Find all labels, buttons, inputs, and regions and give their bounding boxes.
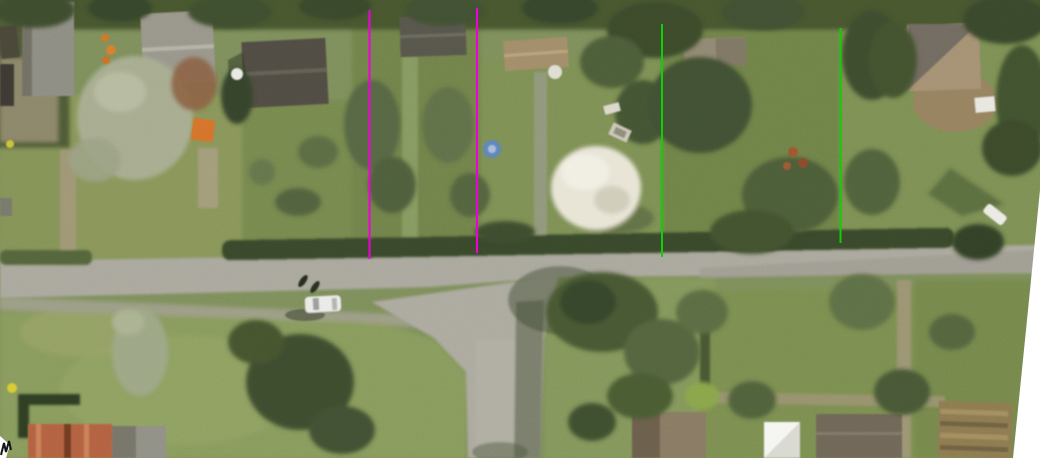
tree-south-4 xyxy=(874,369,930,415)
orange-tarp xyxy=(191,118,216,143)
southwest-tree-mass-3 xyxy=(309,406,375,454)
orange-item-2 xyxy=(106,45,116,55)
tree-over-south-house xyxy=(607,373,673,419)
south-dark-roof xyxy=(816,414,902,458)
sw-red-roof-stripe-2 xyxy=(84,424,89,458)
side-road-center-light xyxy=(476,340,516,458)
garden-bush-1 xyxy=(298,136,338,168)
garden-path-left-2 xyxy=(198,148,218,208)
orange-item-3 xyxy=(102,56,110,64)
tree-by-road-right xyxy=(844,149,900,215)
left-edge-shed-b xyxy=(0,64,14,106)
orange-item-1 xyxy=(101,34,109,42)
sw-red-roof-gap xyxy=(64,424,71,458)
garden-bush-2 xyxy=(275,188,321,216)
canopy-ne-far xyxy=(982,120,1040,176)
left-edge-shed-a xyxy=(0,25,20,59)
tree-right-lawn xyxy=(829,274,895,330)
south-house-roof-left xyxy=(632,412,660,458)
yellow-bush-left xyxy=(6,140,14,148)
garden-chair-2 xyxy=(798,158,808,168)
road-car-rear-window xyxy=(332,298,338,310)
canopy-center-right-3 xyxy=(710,210,794,254)
pale-tree-highlight xyxy=(94,72,146,112)
garden-chair-1 xyxy=(788,147,798,157)
bush-ne-corner xyxy=(952,224,1004,260)
tree-right-lawn-2 xyxy=(929,314,975,350)
tree-by-boundary-1 xyxy=(344,80,400,170)
kiddie-pool-center xyxy=(488,145,496,153)
southwest-tree-mass-2 xyxy=(228,320,284,364)
junction-bush-core xyxy=(560,280,616,324)
aerial-photo-canvas[interactable] xyxy=(0,0,1040,458)
blossom-tree-highlight xyxy=(561,154,609,190)
bottom-left-hedge-vertical xyxy=(18,394,29,438)
garden-bush-3 xyxy=(249,159,275,185)
gray-box-left-edge xyxy=(0,198,12,216)
bright-bush-south xyxy=(685,382,719,410)
satellite-dish-center xyxy=(548,65,562,79)
canopy-center-right xyxy=(648,57,752,153)
tree-east-of-house xyxy=(580,36,644,88)
aerial-map-view xyxy=(0,0,1040,458)
canopy-west-of-ne-house xyxy=(869,22,917,98)
photo-layers xyxy=(0,0,1040,458)
sw-red-roof-stripe-1 xyxy=(36,424,41,458)
hedge-bushes-center xyxy=(475,221,535,243)
garden-path-center xyxy=(534,72,547,250)
pale-tree-lower xyxy=(69,138,121,182)
satellite-dish-west xyxy=(231,68,243,80)
roadside-hedge-left xyxy=(0,250,92,265)
tree-mid-garden xyxy=(422,87,474,163)
sw-gray-roof-left xyxy=(112,426,136,458)
russet-tree xyxy=(171,57,217,111)
tree-by-boundary-1b xyxy=(368,157,416,213)
tree-south-2 xyxy=(568,403,616,441)
ne-garden-table xyxy=(974,96,995,113)
garden-chair-3 xyxy=(783,162,791,170)
tree-south-3 xyxy=(728,381,776,419)
south-dark-roof-ridge xyxy=(816,432,902,435)
blossom-tree-dapple xyxy=(594,186,630,214)
pale-tree-south-highlight xyxy=(112,309,144,335)
yellow-bush-sw xyxy=(7,383,17,393)
grass-path-center-left xyxy=(402,56,418,252)
bush-mid-garden xyxy=(450,173,490,217)
tree-south-mid-2 xyxy=(676,290,728,334)
road-car-windshield xyxy=(313,298,320,310)
